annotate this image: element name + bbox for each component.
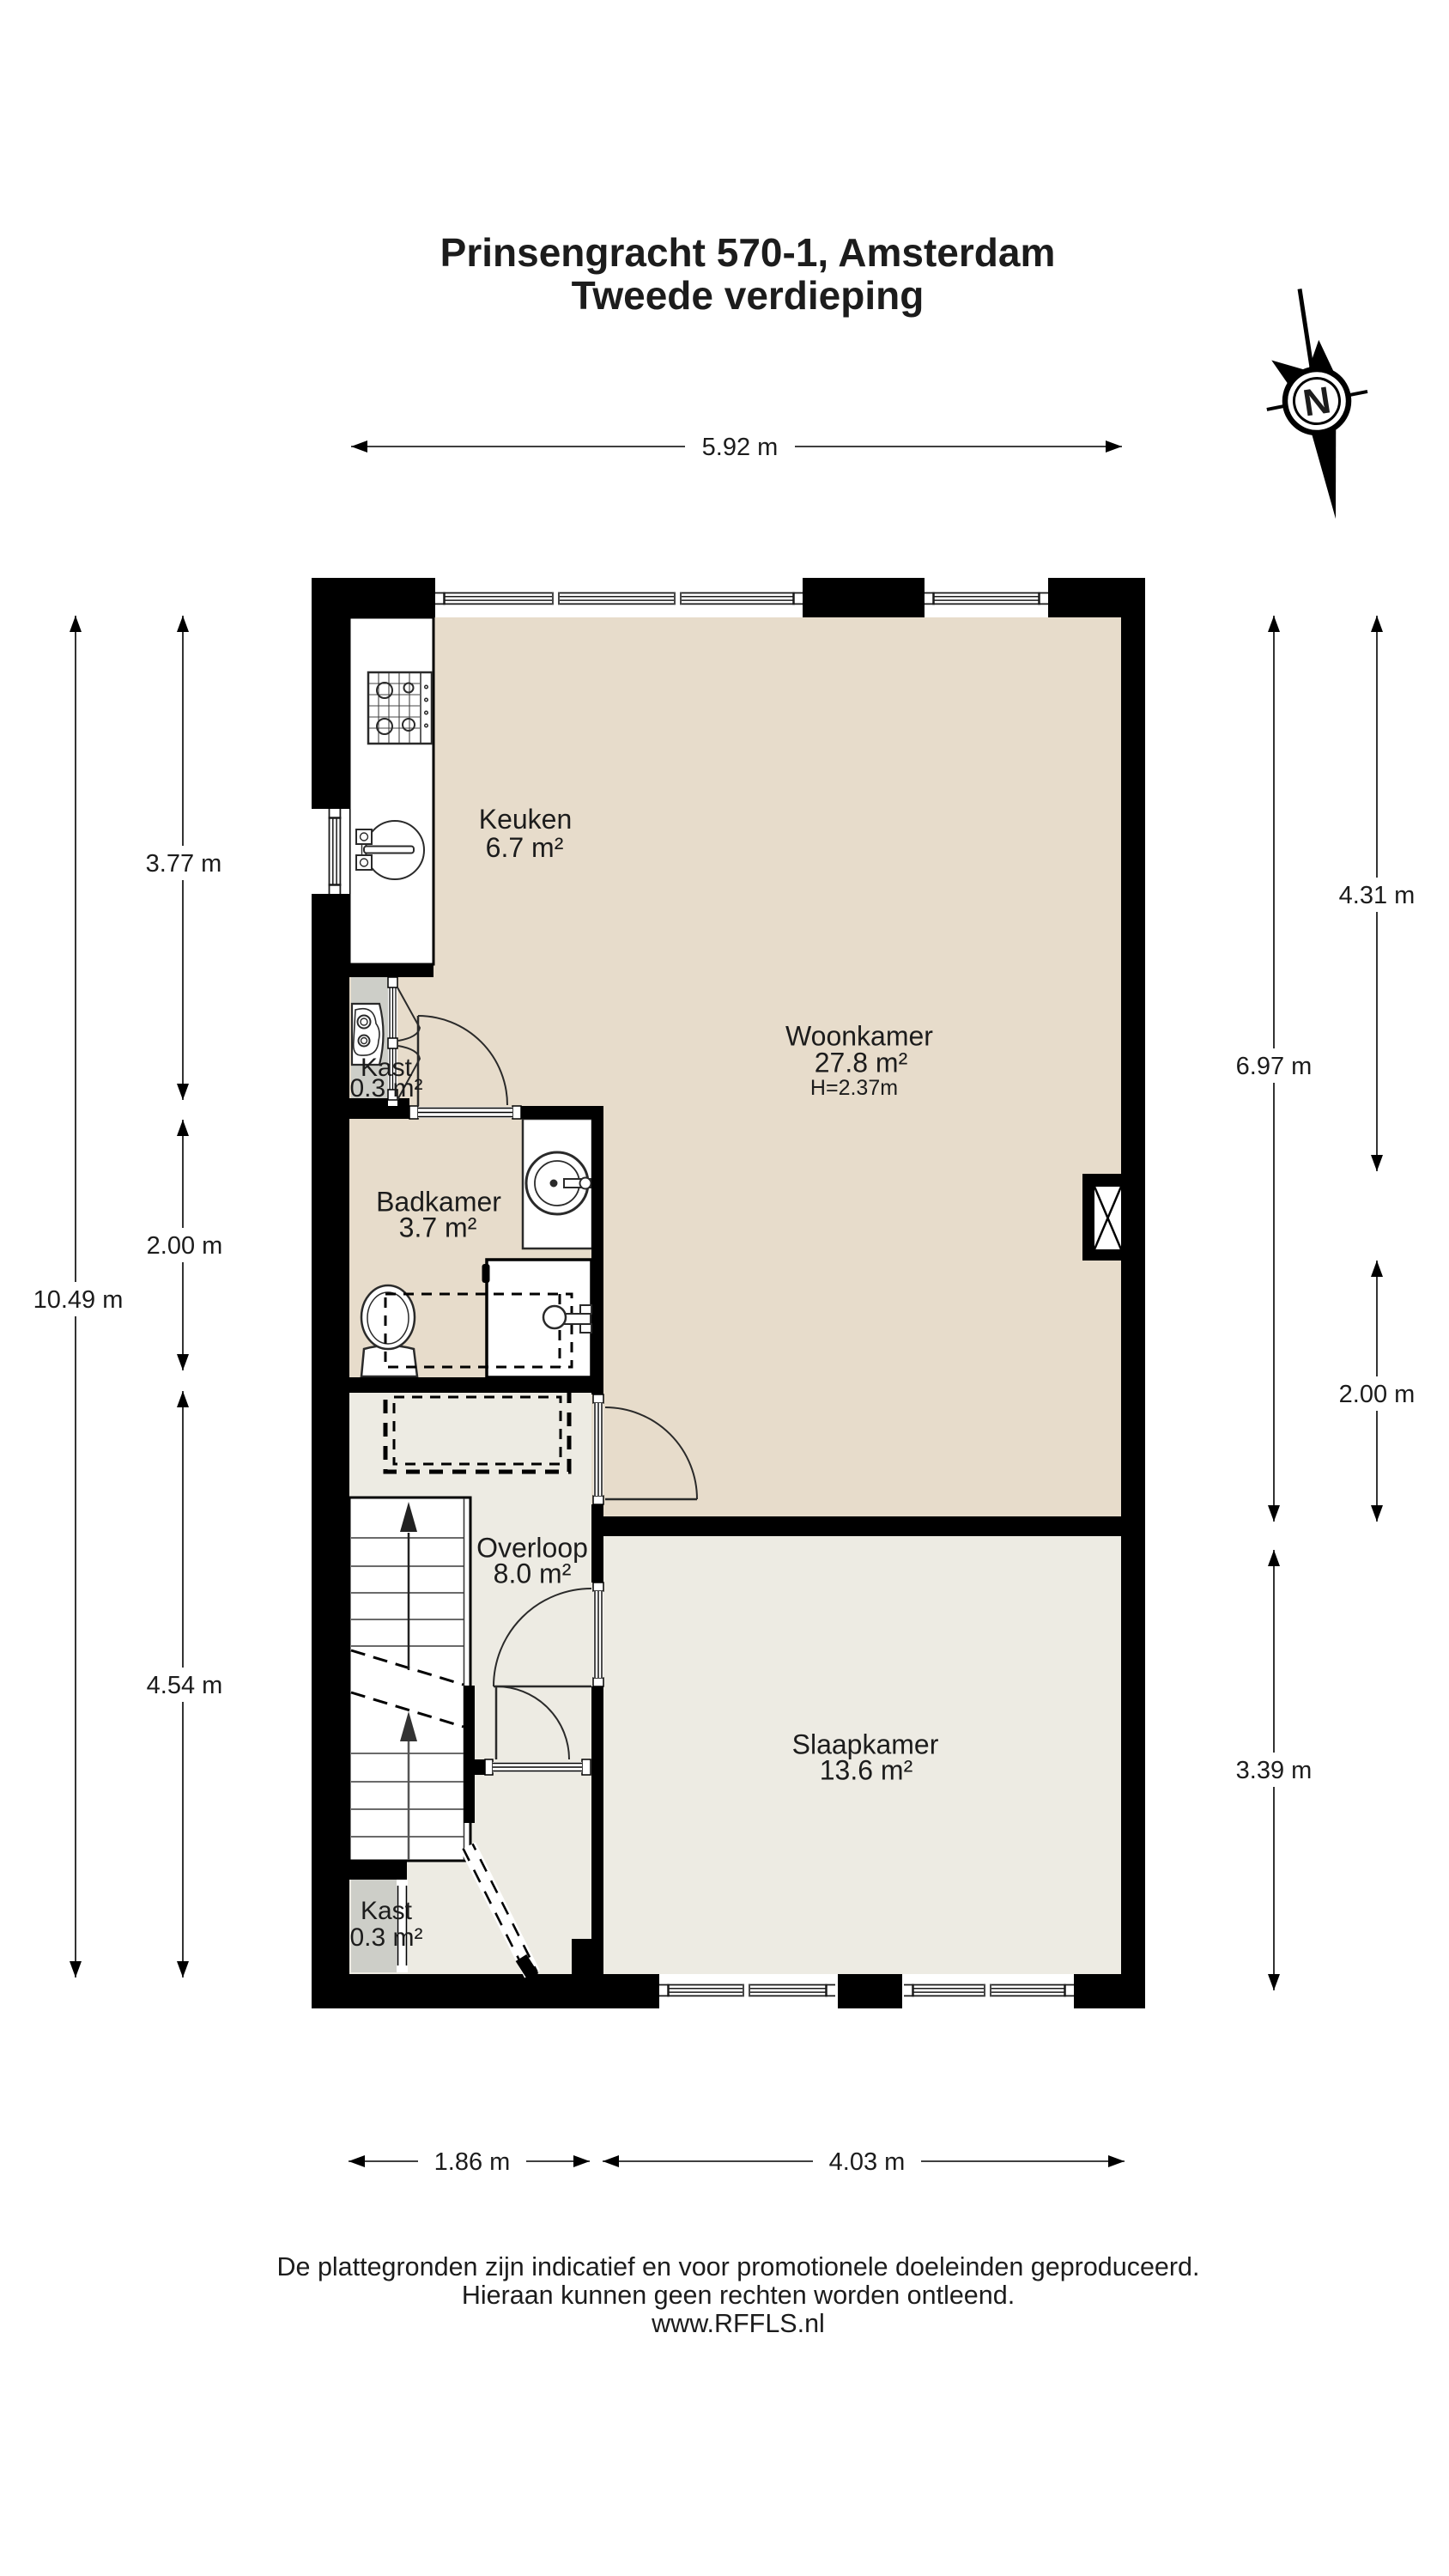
svg-text:De plattegronden zijn indicati: De plattegronden zijn indicatief en voor… bbox=[276, 2252, 1199, 2281]
svg-text:H=2.37m: H=2.37m bbox=[810, 1076, 898, 1100]
svg-text:0.3 m²: 0.3 m² bbox=[349, 1923, 422, 1952]
svg-text:www.RFFLS.nl: www.RFFLS.nl bbox=[651, 2309, 825, 2338]
svg-text:Prinsengracht 570-1, Amsterdam: Prinsengracht 570-1, Amsterdam bbox=[440, 230, 1056, 275]
svg-text:6.97 m: 6.97 m bbox=[1236, 1053, 1313, 1080]
svg-text:2.00 m: 2.00 m bbox=[1339, 1381, 1416, 1408]
svg-text:3.7 m²: 3.7 m² bbox=[399, 1212, 477, 1243]
svg-text:27.8 m²: 27.8 m² bbox=[815, 1048, 908, 1078]
svg-text:10.49 m: 10.49 m bbox=[33, 1286, 124, 1314]
svg-text:1.86 m: 1.86 m bbox=[434, 2148, 511, 2176]
svg-text:Hieraan kunnen geen rechten wo: Hieraan kunnen geen rechten worden ontle… bbox=[462, 2281, 1015, 2310]
svg-text:8.0 m²: 8.0 m² bbox=[494, 1558, 572, 1589]
svg-text:6.7 m²: 6.7 m² bbox=[486, 832, 564, 863]
svg-text:0.3 m²: 0.3 m² bbox=[349, 1074, 422, 1103]
svg-text:3.77 m: 3.77 m bbox=[146, 850, 222, 878]
svg-text:Kast: Kast bbox=[361, 1897, 413, 1925]
svg-text:4.54 m: 4.54 m bbox=[147, 1672, 223, 1699]
svg-text:4.03 m: 4.03 m bbox=[829, 2148, 906, 2176]
svg-text:13.6 m²: 13.6 m² bbox=[820, 1755, 913, 1786]
svg-text:5.92 m: 5.92 m bbox=[702, 434, 779, 461]
svg-text:Tweede verdieping: Tweede verdieping bbox=[572, 273, 925, 318]
svg-text:3.39 m: 3.39 m bbox=[1236, 1757, 1313, 1784]
svg-text:4.31 m: 4.31 m bbox=[1339, 882, 1416, 909]
svg-text:Keuken: Keuken bbox=[479, 804, 573, 835]
svg-text:2.00 m: 2.00 m bbox=[147, 1232, 223, 1260]
